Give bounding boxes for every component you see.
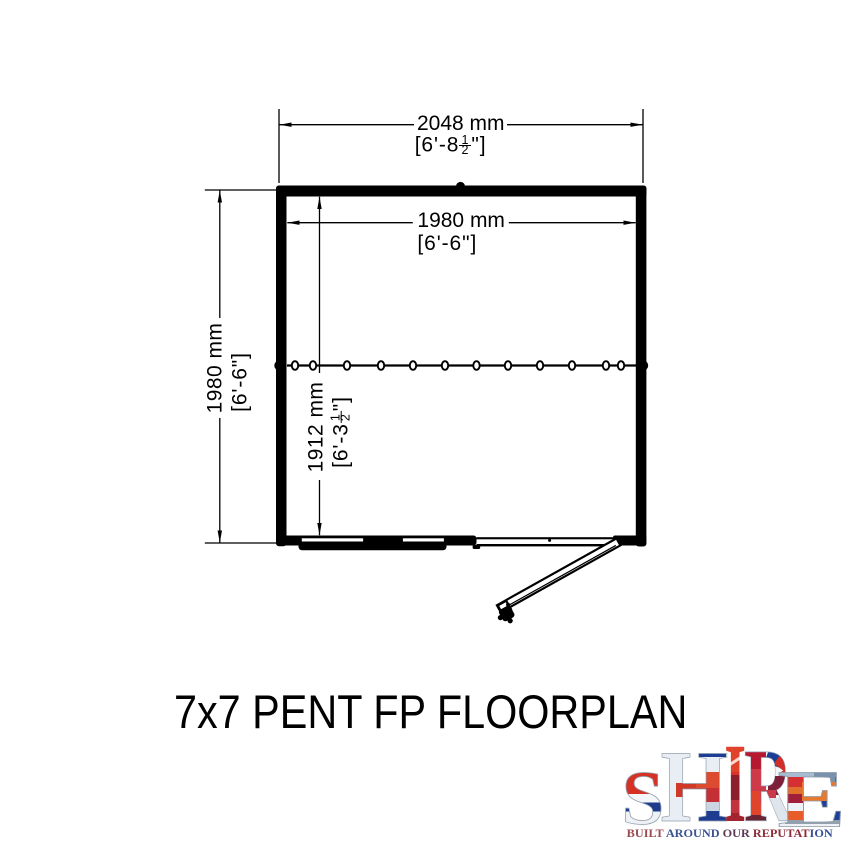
svg-text:H: H [661,729,729,843]
svg-text:BUILT AROUND OUR REPUTATION: BUILT AROUND OUR REPUTATION [627,828,834,840]
